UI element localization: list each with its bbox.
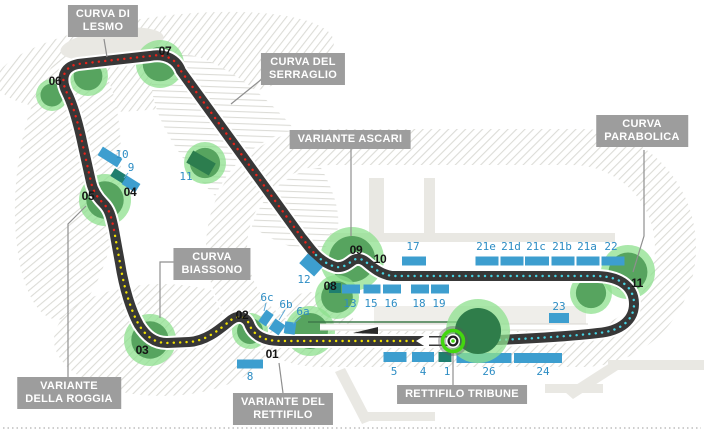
corner-number-03: 03 xyxy=(136,343,149,357)
grandstand-label-17: 17 xyxy=(406,240,419,253)
corner-number-11: 11 xyxy=(631,276,643,290)
grandstand-label-11: 11 xyxy=(179,170,192,183)
access-road xyxy=(608,360,704,370)
grandstand-block xyxy=(514,353,562,363)
monza-circuit-map: { "figure": { "kind": "race-circuit-map"… xyxy=(0,0,704,431)
grandstand-label-1: 1 xyxy=(444,365,451,378)
grandstand-block xyxy=(342,285,360,294)
grandstand-block xyxy=(237,360,263,369)
grandstand-label-21b: 21b xyxy=(552,240,572,253)
grandstand-block xyxy=(412,352,434,362)
grandstand-21a: 21a xyxy=(577,240,600,266)
grandstand-label-21d: 21d xyxy=(501,240,521,253)
grandstand-label-26: 26 xyxy=(482,365,495,378)
grandstand-label-4: 4 xyxy=(420,365,427,378)
grandstand-block xyxy=(577,257,600,266)
grandstand-block xyxy=(549,313,569,323)
callout-leader-variante-del-rettifilo xyxy=(279,363,283,393)
callout-line: CURVA DEL xyxy=(269,56,337,69)
grandstand-label-6b: 6b xyxy=(279,298,292,311)
callout-line: VARIANTE xyxy=(25,380,113,393)
callout-curva-del-serraglio: CURVA DELSERRAGLIO xyxy=(261,53,345,85)
grandstand-block xyxy=(552,257,575,266)
grandstand-21c: 21c xyxy=(525,240,549,266)
callout-line: DELLA ROGGIA xyxy=(25,393,113,406)
grandstand-label-18: 18 xyxy=(412,297,425,310)
grandstand-block xyxy=(364,285,381,294)
infield-road xyxy=(424,178,435,240)
callout-rettifilo-tribune: RETTIFILO TRIBUNE xyxy=(397,385,527,404)
callout-line: RETTIFILO TRIBUNE xyxy=(405,388,519,401)
grandstand-block xyxy=(431,285,449,294)
callout-variante-ascari: VARIANTE ASCARI xyxy=(290,130,411,149)
corner-number-09: 09 xyxy=(350,243,363,257)
grandstand-block xyxy=(602,257,625,266)
infield-road xyxy=(369,178,384,240)
grandstand-label-21e: 21e xyxy=(476,240,496,253)
grandstand-label-6c: 6c xyxy=(260,291,273,304)
callout-variante-della-roggia: VARIANTEDELLA ROGGIA xyxy=(17,377,121,409)
callout-line: VARIANTE ASCARI xyxy=(298,133,403,146)
callout-curva-di-lesmo: CURVA DILESMO xyxy=(68,5,138,37)
grandstand-block xyxy=(384,352,407,362)
callout-line: SERRAGLIO xyxy=(269,69,337,82)
callout-curva-biassono: CURVABIASSONO xyxy=(173,248,250,280)
grandstand-label-10: 10 xyxy=(115,148,128,161)
corner-number-08: 08 xyxy=(324,279,337,293)
grandstand-label-19: 19 xyxy=(432,297,445,310)
callout-line: BIASSONO xyxy=(181,264,242,277)
corner-number-07: 07 xyxy=(159,44,172,58)
grandstand-label-5: 5 xyxy=(391,365,398,378)
grandstand-21e: 21e xyxy=(476,240,499,266)
grandstand-21b: 21b xyxy=(552,240,575,266)
grandstand-label-21c: 21c xyxy=(526,240,546,253)
grandstand-block xyxy=(476,257,499,266)
grandstand-label-13: 13 xyxy=(343,297,356,310)
callout-variante-del-rettifilo: VARIANTE DELRETTIFILO xyxy=(233,393,333,425)
corner-number-10: 10 xyxy=(374,252,387,266)
access-road xyxy=(360,412,435,421)
start-finish-marker xyxy=(438,326,468,356)
callout-line: CURVA xyxy=(181,251,242,264)
grandstand-label-16: 16 xyxy=(384,297,397,310)
callout-line: CURVA xyxy=(604,118,680,131)
callout-line: VARIANTE DEL xyxy=(241,396,325,409)
callout-line: PARABOLICA xyxy=(604,131,680,144)
grandstand-label-8: 8 xyxy=(247,370,254,383)
corner-number-01: 01 xyxy=(266,347,279,361)
grandstand-label-21a: 21a xyxy=(577,240,597,253)
grandstand-block xyxy=(402,257,426,266)
grandstand-label-22: 22 xyxy=(604,240,617,253)
grandstand-block xyxy=(411,285,429,294)
grandstand-block xyxy=(525,257,549,266)
grandstand-label-6a: 6a xyxy=(296,305,309,318)
circuit-map-canvas: 10911126c6b6a813151618191721e21d21c21b21… xyxy=(0,0,704,431)
callout-line: LESMO xyxy=(76,21,130,34)
corner-number-04: 04 xyxy=(124,185,137,199)
grandstand-label-23: 23 xyxy=(552,300,565,313)
grandstand-block xyxy=(501,257,524,266)
corner-number-02: 02 xyxy=(236,308,249,322)
grandstand-label-15: 15 xyxy=(364,297,377,310)
corner-number-05: 05 xyxy=(82,189,95,203)
grandstand-label-24: 24 xyxy=(536,365,550,378)
access-road xyxy=(545,384,603,393)
callout-curva-parabolica: CURVAPARABOLICA xyxy=(596,115,688,147)
grandstand-label-9: 9 xyxy=(128,161,135,174)
marker-center-dot xyxy=(451,339,455,343)
grandstand-block xyxy=(383,285,401,294)
grandstand-17: 17 xyxy=(402,240,426,266)
grandstand-21d: 21d xyxy=(501,240,524,266)
corner-number-06: 06 xyxy=(49,74,62,88)
callout-line: CURVA DI xyxy=(76,8,130,21)
callout-line: RETTIFILO xyxy=(241,409,325,422)
grandstand-label-12: 12 xyxy=(297,273,310,286)
